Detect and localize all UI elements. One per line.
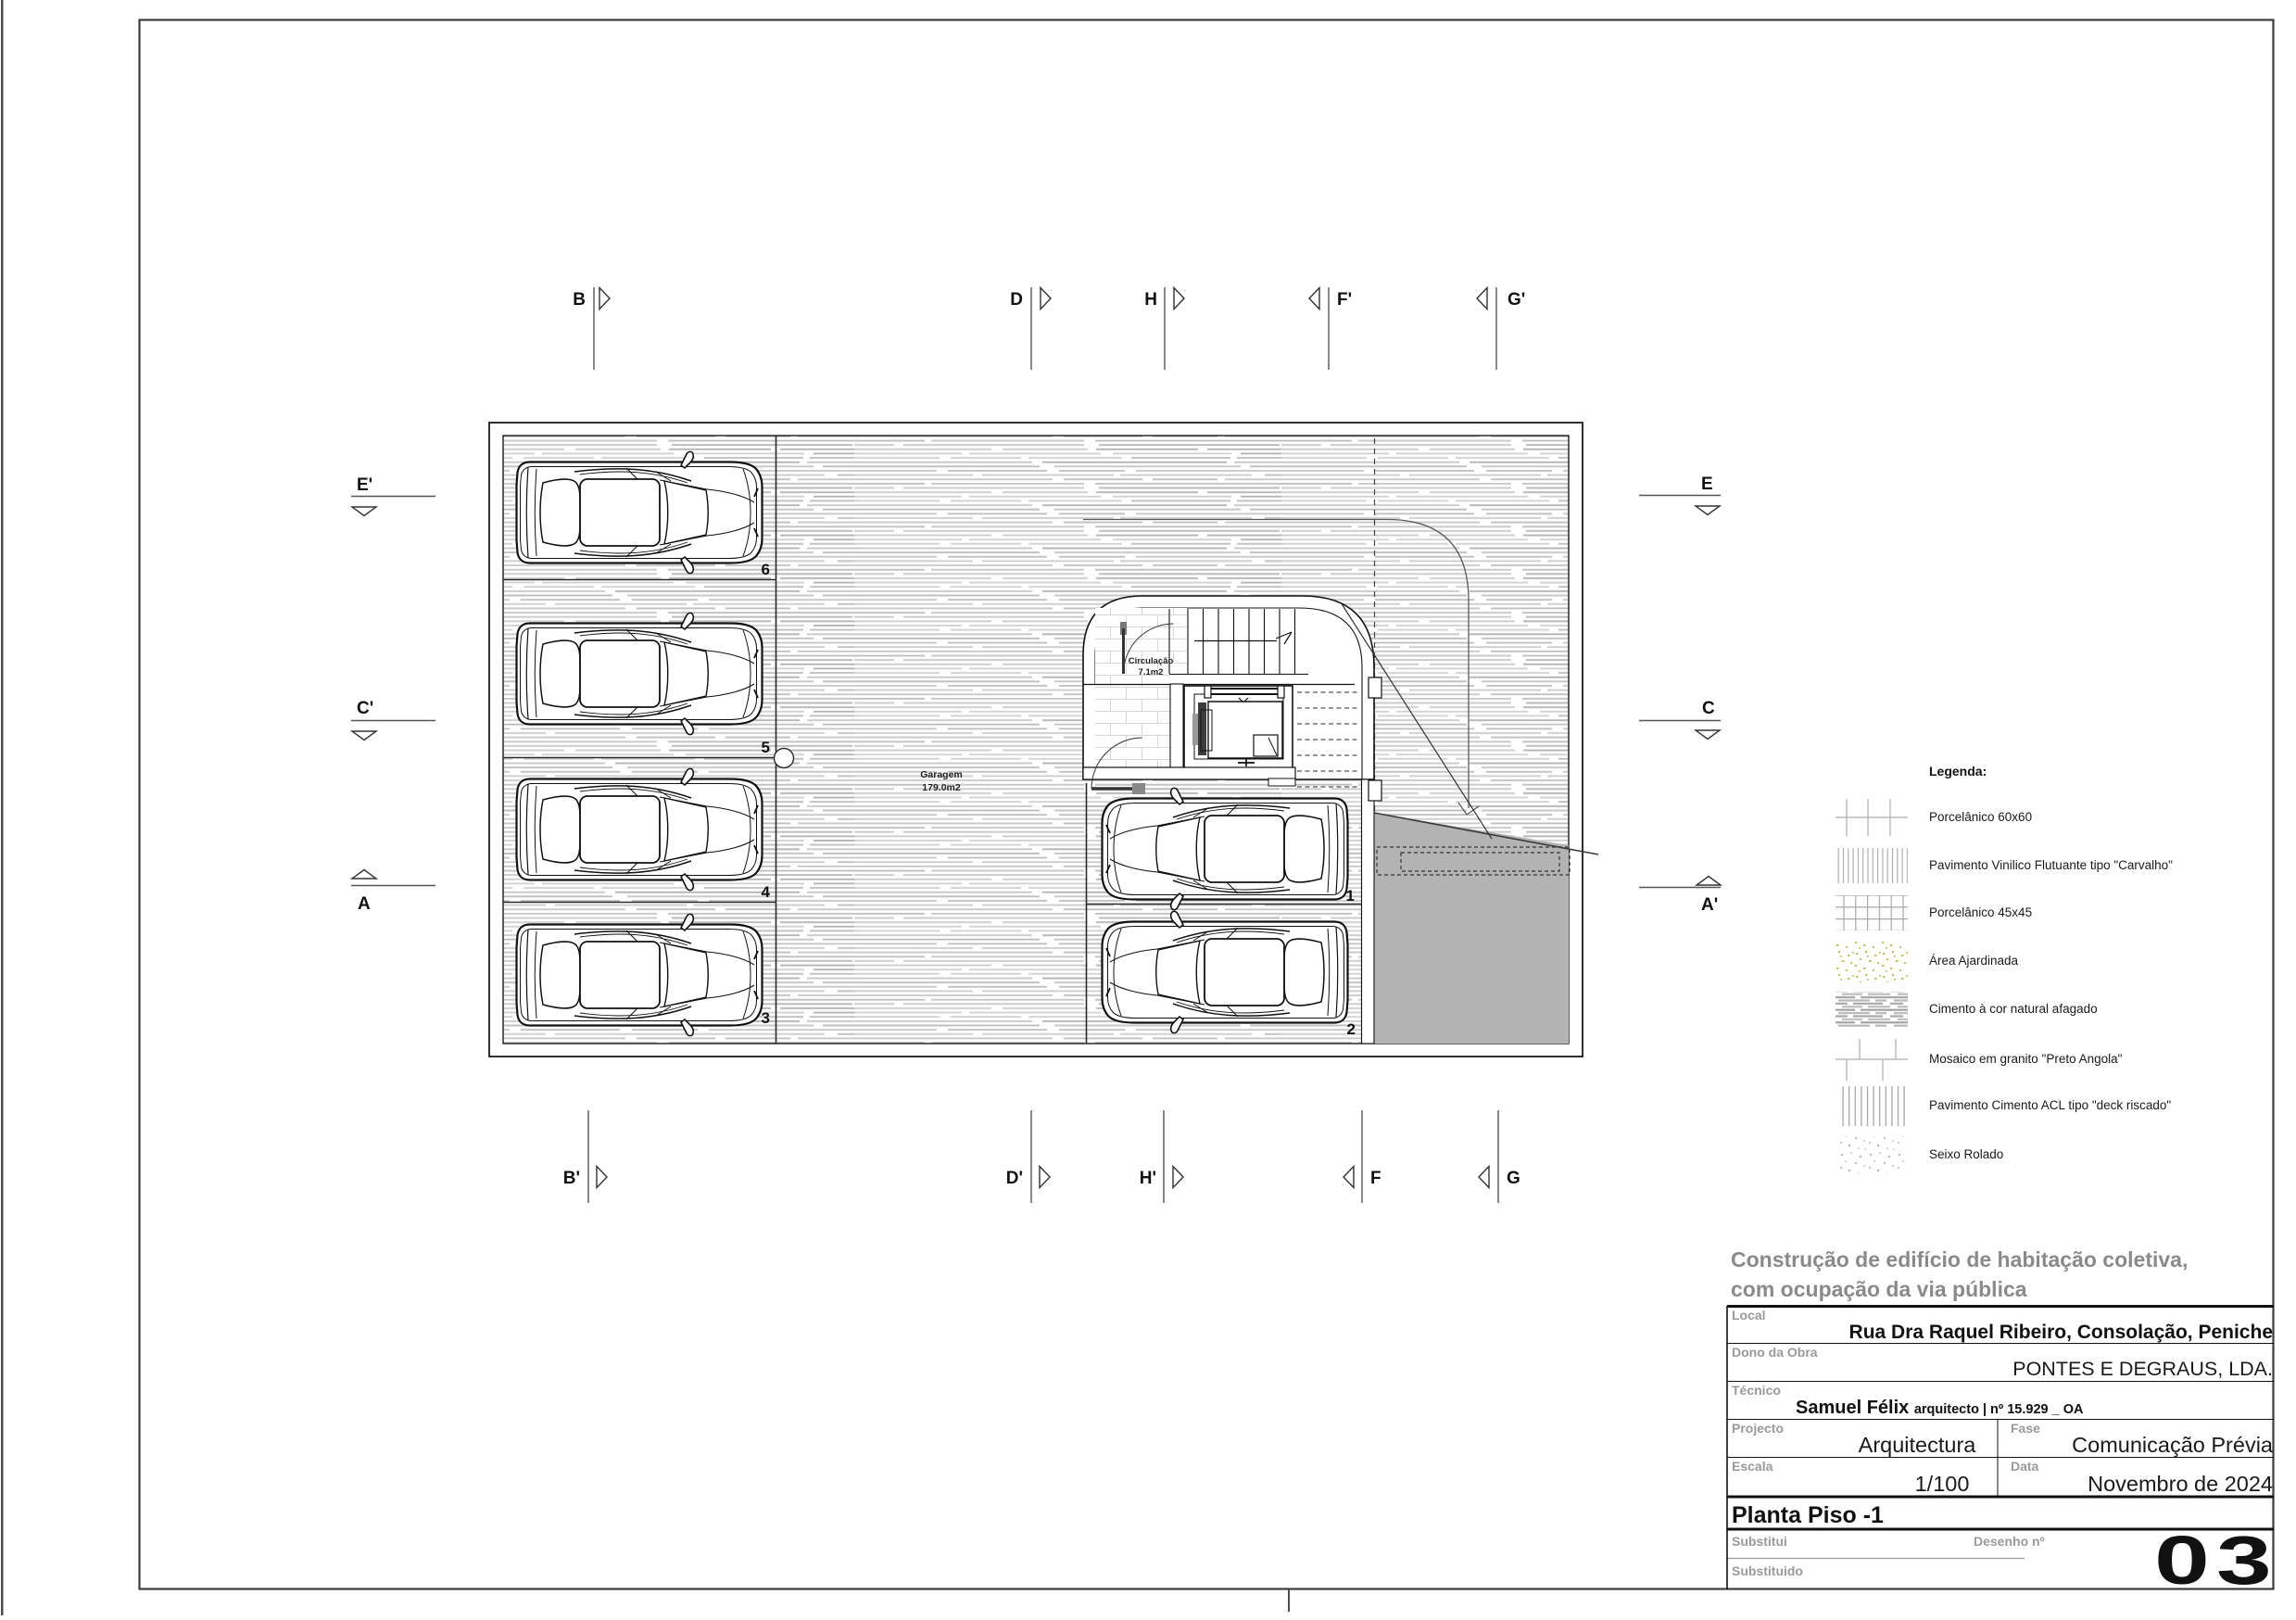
svg-text:C': C' — [357, 699, 373, 718]
svg-text:Seixo Rolado: Seixo Rolado — [1929, 1147, 2003, 1161]
svg-text:Substitui: Substitui — [1732, 1534, 1787, 1549]
svg-text:PONTES E DEGRAUS, LDA.: PONTES E DEGRAUS, LDA. — [2012, 1358, 2273, 1380]
svg-text:Substituido: Substituido — [1732, 1563, 1803, 1578]
svg-text:Fase: Fase — [2011, 1421, 2040, 1436]
svg-text:Pavimento Vinilico Flutuante t: Pavimento Vinilico Flutuante tipo "Carva… — [1929, 858, 2173, 872]
svg-text:B': B' — [563, 1169, 580, 1188]
svg-text:Mosaico em granito "Preto Ango: Mosaico em granito "Preto Angola" — [1929, 1052, 2123, 1066]
svg-text:E': E' — [357, 475, 372, 495]
svg-text:A': A' — [1701, 895, 1718, 915]
svg-text:7.1m2: 7.1m2 — [1139, 667, 1164, 677]
svg-text:C: C — [1702, 699, 1715, 718]
svg-text:Cimento à cor natural afagado: Cimento à cor natural afagado — [1929, 1002, 2098, 1016]
svg-text:Técnico: Técnico — [1732, 1383, 1781, 1398]
svg-text:4: 4 — [762, 883, 771, 901]
svg-text:Escala: Escala — [1732, 1459, 1773, 1474]
svg-text:Comunicação Prévia: Comunicação Prévia — [2072, 1433, 2274, 1457]
svg-text:Dono da Obra: Dono da Obra — [1732, 1345, 1818, 1360]
svg-text:Rua Dra Raquel Ribeiro, Consol: Rua Dra Raquel Ribeiro, Consolação, Peni… — [1849, 1322, 2273, 1343]
svg-text:1/100: 1/100 — [1915, 1472, 1970, 1496]
svg-text:Construção de edifício de habi: Construção de edifício de habitação cole… — [1731, 1247, 2188, 1272]
svg-text:G': G' — [1508, 290, 1525, 310]
svg-text:3: 3 — [762, 1009, 770, 1027]
svg-text:Projecto: Projecto — [1732, 1421, 1784, 1436]
svg-text:Local: Local — [1732, 1308, 1766, 1323]
svg-text:Novembro de 2024: Novembro de 2024 — [2088, 1472, 2273, 1496]
svg-text:Porcelânico 45x45: Porcelânico 45x45 — [1929, 905, 2032, 919]
svg-text:Arquitectura: Arquitectura — [1859, 1433, 1977, 1457]
svg-text:Desenho nº: Desenho nº — [1974, 1534, 2045, 1549]
svg-text:1: 1 — [1346, 887, 1355, 905]
svg-text:Data: Data — [2011, 1459, 2039, 1474]
svg-text:Pavimento Cimento ACL tipo "de: Pavimento Cimento ACL tipo "deck riscado… — [1929, 1098, 2171, 1112]
svg-text:179.0m2: 179.0m2 — [922, 782, 961, 793]
svg-text:03: 03 — [2154, 1522, 2278, 1599]
svg-text:D: D — [1010, 290, 1023, 310]
svg-text:D': D' — [1006, 1169, 1023, 1188]
svg-text:E: E — [1701, 475, 1713, 494]
svg-text:Área Ajardinada: Área Ajardinada — [1929, 954, 2019, 968]
svg-text:6: 6 — [762, 561, 770, 578]
svg-text:A: A — [358, 894, 371, 914]
svg-text:Circulação: Circulação — [1129, 656, 1174, 666]
svg-text:2: 2 — [1347, 1020, 1356, 1038]
svg-text:Garagem: Garagem — [920, 769, 963, 780]
svg-text:5: 5 — [762, 739, 770, 756]
svg-text:Planta Piso -1: Planta Piso -1 — [1732, 1502, 1884, 1528]
svg-text:G: G — [1507, 1169, 1520, 1188]
svg-text:Legenda:: Legenda: — [1929, 764, 1987, 778]
svg-text:F: F — [1370, 1169, 1381, 1188]
svg-text:com ocupação da via pública: com ocupação da via pública — [1731, 1277, 2027, 1301]
svg-text:Porcelânico 60x60: Porcelânico 60x60 — [1929, 810, 2032, 824]
svg-text:F': F' — [1337, 290, 1352, 310]
svg-text:B: B — [573, 290, 586, 310]
svg-text:H: H — [1144, 290, 1157, 310]
svg-text:H': H' — [1140, 1169, 1156, 1188]
